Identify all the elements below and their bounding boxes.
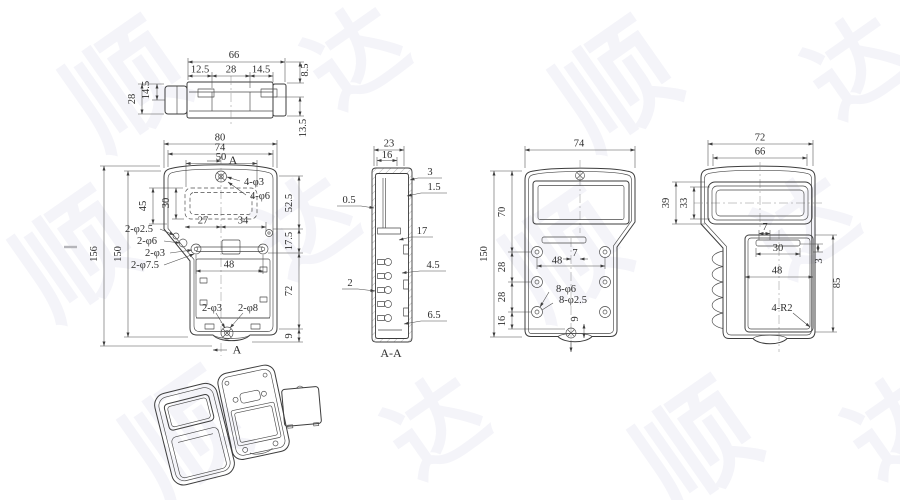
dim-text: 6.5: [427, 310, 440, 321]
dim-text: 45: [138, 201, 149, 212]
dim-text: 4.5: [426, 260, 439, 271]
dim-text: 2: [347, 278, 352, 289]
dim-text: 12.5: [191, 65, 209, 76]
dim-text: 9: [284, 333, 295, 338]
dim-text: 17.5: [284, 232, 295, 250]
grip-ribs: [712, 251, 723, 329]
dim-30-face: 30: [756, 243, 800, 257]
dim-text: 28: [497, 262, 508, 273]
callout-text: 4-φ6: [250, 191, 270, 202]
dim-16: 16: [377, 150, 397, 166]
dim-85: 85: [815, 235, 843, 332]
top-view-dimensions: 66 12.5 28 14.5 28: [127, 50, 311, 137]
leader-17: 17: [399, 226, 433, 240]
dim-right-13.5: 13.5: [275, 97, 309, 137]
leader-1.5: 1.5: [407, 182, 447, 196]
dim-text: 70: [497, 207, 508, 218]
dim-48-face: 48: [745, 266, 813, 278]
iso-battery-cover: [281, 384, 321, 428]
dim-text: 72: [284, 286, 295, 297]
isometric-views: [152, 363, 322, 487]
section-view: 23 16 3 1.5: [337, 139, 447, 361]
callout-text: 4-R2: [772, 303, 793, 314]
leader-0.5: 0.5: [337, 195, 374, 208]
dim-text: 39: [661, 198, 672, 209]
callout-8phi2.5: 8-φ2.5: [542, 295, 587, 310]
display-window: [533, 181, 629, 224]
dim-text: 28: [226, 65, 237, 76]
callout-text: 2-φ3: [202, 303, 222, 314]
dim-text: 1.5: [427, 182, 440, 193]
face-view-dimensions: 72 66 39 33: [661, 133, 843, 333]
dim-7-face: 7: [759, 222, 770, 240]
dim-right-8.5: 8.5: [286, 62, 311, 83]
dim-text: 16: [382, 150, 393, 161]
dim-text: 7: [762, 222, 767, 233]
dim-text: 33: [679, 198, 690, 209]
iso-front-shell: [152, 381, 237, 488]
callout-text: 2-φ3: [145, 248, 165, 259]
dim-7-back: 7: [563, 248, 588, 259]
dim-text: 9: [570, 316, 581, 321]
dim-left-segments: 70 28 28 16: [497, 171, 565, 329]
dim-48-front: 48: [196, 255, 263, 274]
callout-text: 2-φ7.5: [131, 260, 159, 271]
dim-text: 150: [113, 246, 124, 262]
section-label: A: [233, 343, 242, 357]
front-view-dimensions: 80 74 50 A 4-φ3: [89, 133, 303, 357]
face-view: 72 66 39 33: [661, 133, 843, 353]
dim-text: 27: [198, 216, 209, 227]
front-view: 80 74 50 A 4-φ3: [89, 133, 303, 357]
callout-text: 2-φ8: [238, 303, 258, 314]
dim-text: 30: [773, 243, 784, 254]
engineering-drawing: 66 12.5 28 14.5 28: [0, 0, 900, 500]
dim-text: 156: [89, 246, 100, 262]
dim-text: 48: [552, 256, 563, 267]
dim-text: 7: [572, 248, 577, 259]
dim-text: 3: [814, 258, 825, 263]
dim-text: 16: [497, 316, 508, 327]
back-view: 74 150 70 28 2: [479, 139, 635, 353]
dim-text: 34: [238, 216, 249, 227]
dim-12.5-28-14.5: 12.5 28 14.5: [188, 65, 273, 89]
iso-back-shell: [216, 363, 291, 461]
dim-9-back: 9: [570, 316, 584, 338]
callout-4phi3: 4-φ3: [227, 177, 264, 188]
dim-text: 66: [755, 147, 766, 158]
dim-text: 48: [772, 266, 783, 277]
dim-text: 72: [755, 133, 766, 144]
dim-text: 50: [216, 152, 227, 163]
callout-text: 8-φ2.5: [559, 295, 587, 306]
dim-text: 74: [574, 139, 585, 150]
dim-text: 85: [832, 278, 843, 289]
dim-text: 30: [161, 198, 172, 209]
drawing-sheet: 顺达顺达顺达顺达顺达顺达: [0, 0, 900, 500]
slot: [542, 237, 586, 243]
dim-text: 48: [224, 260, 235, 271]
dim-text: 17: [417, 226, 428, 237]
callout-4R2: 4-R2: [772, 303, 811, 327]
dim-text: 66: [229, 50, 240, 61]
dim-text: 14.5: [252, 65, 270, 76]
section-view-geometry: [372, 168, 412, 342]
callout-text: 2-φ2.5: [125, 224, 153, 235]
dim-text: 13.5: [298, 119, 309, 137]
section-view-label: A-A: [380, 346, 402, 360]
callout-text: 4-φ3: [244, 177, 264, 188]
top-view-geometry: [165, 76, 286, 124]
face-view-geometry: [694, 162, 822, 352]
callout-text: 2-φ6: [137, 236, 157, 247]
dim-left-14.5: 14.5: [141, 81, 165, 100]
dim-text: 52.5: [284, 194, 295, 212]
dim-text: 28: [497, 292, 508, 303]
dim-text: 3: [427, 167, 432, 178]
section-marker-bottom: A: [213, 343, 242, 357]
leader-2: 2: [342, 278, 375, 291]
dim-text: 150: [479, 246, 490, 262]
section-label: A: [229, 153, 238, 167]
back-view-geometry: [525, 160, 635, 352]
dim-text: 28: [127, 94, 138, 105]
dim-text: 0.5: [342, 195, 355, 206]
callout-2phi2.5: 2-φ2.5: [125, 224, 174, 235]
leader-3: 3: [410, 167, 442, 180]
dim-text: 23: [384, 139, 395, 150]
top-view: 66 12.5 28 14.5 28: [127, 50, 311, 137]
dim-text: 8.5: [300, 63, 311, 76]
callout-text: 8-φ6: [556, 284, 576, 295]
dim-text: 14.5: [141, 81, 152, 99]
